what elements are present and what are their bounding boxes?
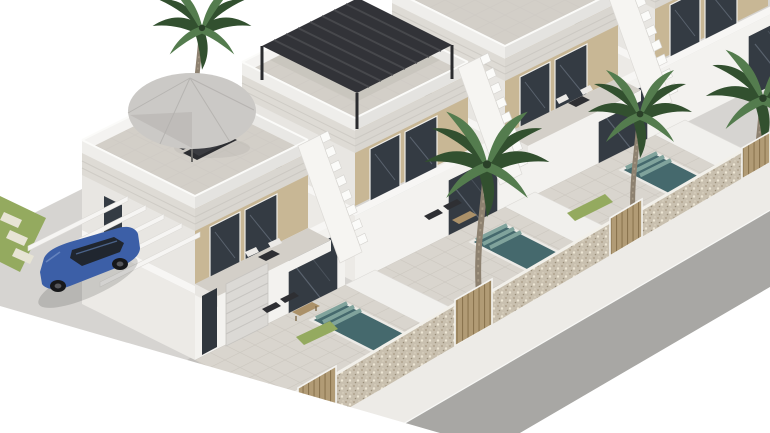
entrance-door xyxy=(202,288,217,355)
render-canvas xyxy=(0,0,770,433)
architectural-render xyxy=(0,0,770,433)
